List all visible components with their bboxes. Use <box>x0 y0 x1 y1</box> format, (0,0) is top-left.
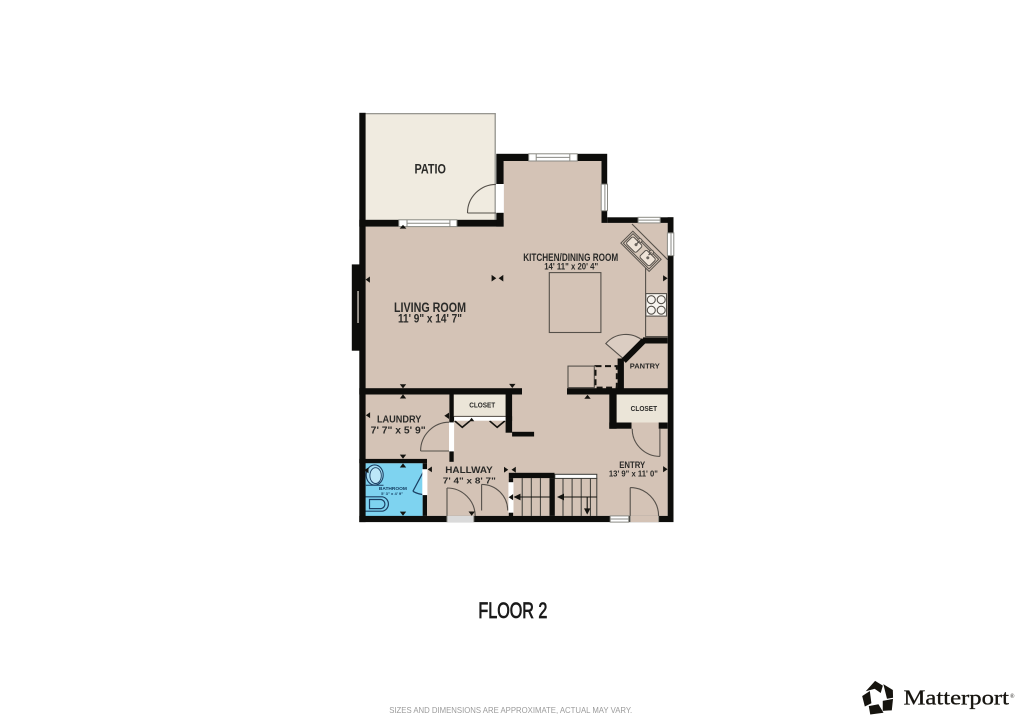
svg-text:11' 9" x 14' 7": 11' 9" x 14' 7" <box>398 314 462 326</box>
svg-text:SIZES AND DIMENSIONS ARE APPRO: SIZES AND DIMENSIONS ARE APPROXIMATE, AC… <box>389 706 632 715</box>
svg-text:14' 11" x 20' 4": 14' 11" x 20' 4" <box>544 261 598 272</box>
svg-text:13' 9" x 11' 0": 13' 9" x 11' 0" <box>609 468 658 478</box>
svg-text:FLOOR 2: FLOOR 2 <box>478 598 547 623</box>
svg-text:LAUNDRY: LAUNDRY <box>377 413 422 425</box>
svg-text:®: ® <box>1010 693 1015 700</box>
svg-text:PATIO: PATIO <box>414 161 446 176</box>
svg-text:7' 7" x 5' 9": 7' 7" x 5' 9" <box>371 426 426 437</box>
svg-text:Matterport: Matterport <box>904 685 1010 709</box>
svg-text:HALLWAY: HALLWAY <box>445 465 492 475</box>
svg-text:5' 3" x 4' 9": 5' 3" x 4' 9" <box>381 491 403 496</box>
svg-text:7' 4" x 8' 7": 7' 4" x 8' 7" <box>443 476 496 486</box>
svg-text:BATHROOM: BATHROOM <box>379 486 407 491</box>
svg-text:CLOSET: CLOSET <box>631 404 658 413</box>
svg-text:PANTRY: PANTRY <box>630 361 660 370</box>
svg-text:CLOSET: CLOSET <box>469 403 496 410</box>
